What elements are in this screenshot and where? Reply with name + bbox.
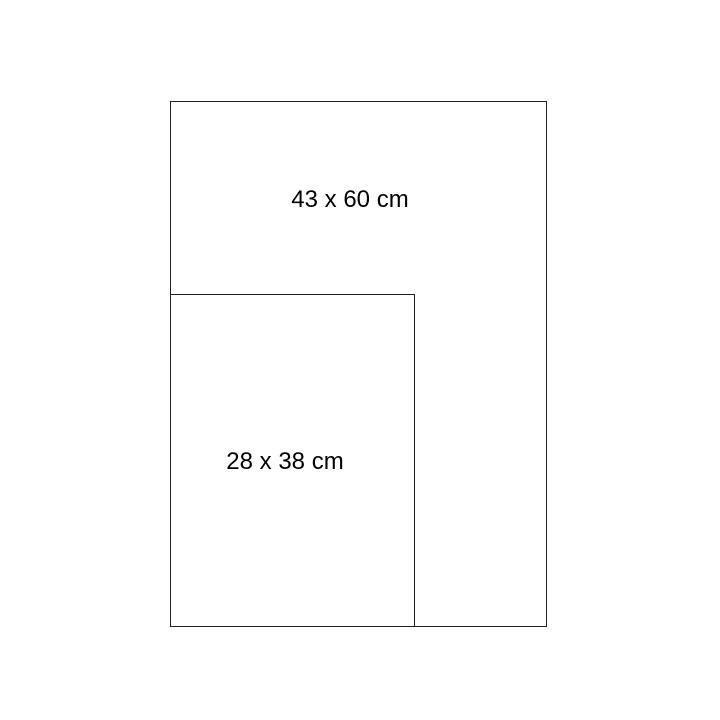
inner-rectangle: 28 x 38 cm bbox=[170, 294, 415, 627]
diagram-canvas: 43 x 60 cm 28 x 38 cm bbox=[0, 0, 720, 720]
outer-rectangle-dimension-label: 43 x 60 cm bbox=[291, 188, 408, 212]
inner-rectangle-dimension-label: 28 x 38 cm bbox=[226, 450, 343, 474]
